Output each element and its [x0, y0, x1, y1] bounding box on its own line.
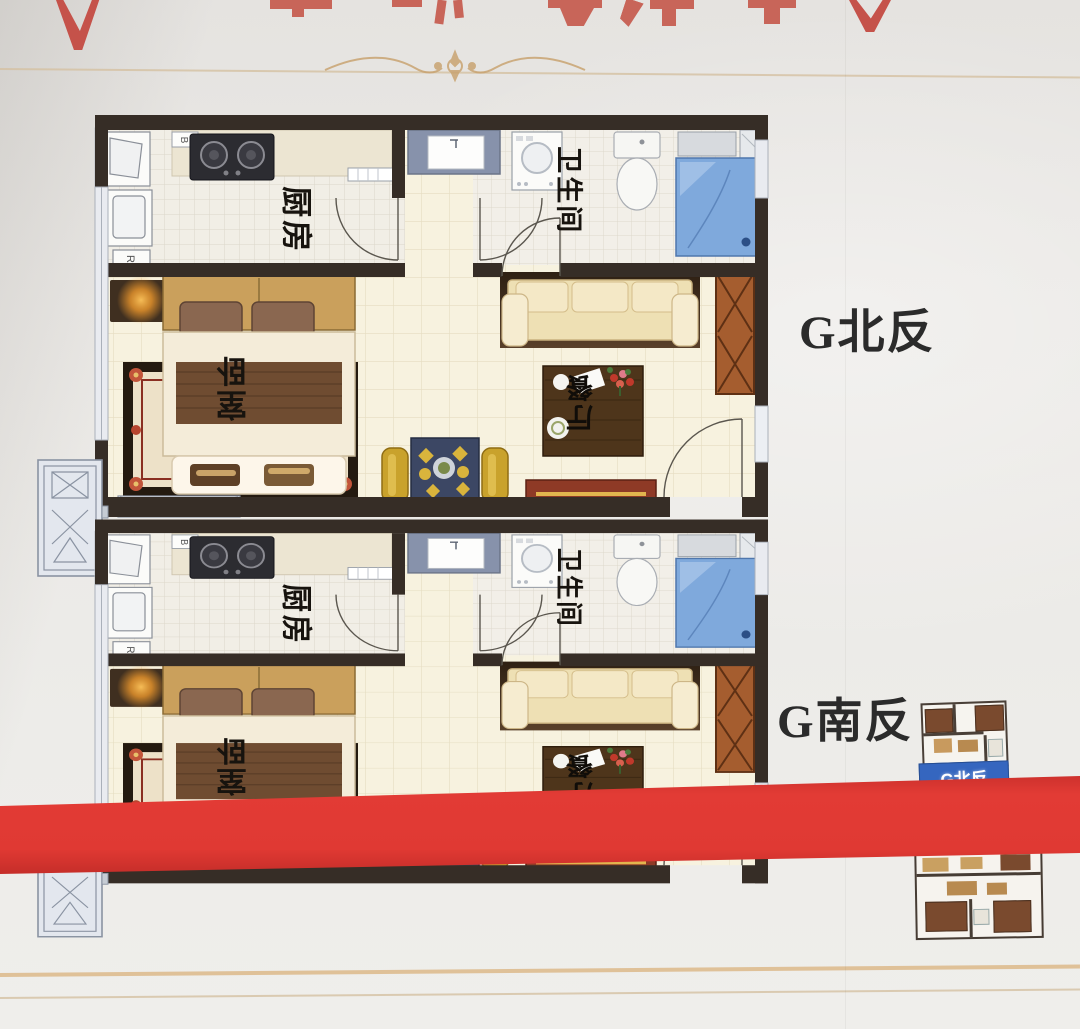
bottom-border-line-thick [0, 965, 1080, 977]
washer-mark: R [124, 646, 136, 654]
washer-mark: R [124, 255, 136, 263]
bathroom-label: 卫生间 [554, 146, 581, 233]
bathroom-label: 卫生间 [554, 548, 581, 626]
dining-label: 餐厅 [566, 372, 593, 429]
stove-icon [190, 537, 274, 579]
paper-crease [845, 0, 846, 1029]
bottom-border-line-thin [0, 989, 1080, 999]
unit-caption-g-south: G南反 [777, 682, 914, 751]
unit-caption-g-north: G北反 [799, 293, 936, 362]
title-ornament-left [56, 0, 102, 50]
dining-table-icon [543, 366, 643, 456]
sofa-icon [500, 662, 700, 731]
bath-counter [678, 130, 766, 158]
kitchen-label: 厨房 [280, 186, 311, 251]
toilet-icon [614, 535, 660, 606]
bedroom-label: 卧室 [216, 736, 247, 795]
stove-icon [190, 134, 274, 180]
boiler-mark: B [178, 137, 189, 144]
bedroom-label: 卧室 [216, 354, 247, 419]
shower-icon [676, 558, 764, 647]
entry-basin [408, 130, 500, 174]
sofa-icon [500, 272, 700, 348]
title-ornament-right [849, 0, 891, 32]
wardrobe-icon [716, 663, 754, 772]
floor-plan-unit: R B [30, 110, 780, 580]
floor-plan-unit-lower: R B [30, 515, 780, 940]
boiler-mark: B [178, 539, 190, 545]
wardrobe-icon [716, 274, 754, 394]
bath-counter [678, 533, 766, 558]
toilet-icon [614, 132, 660, 210]
entry-basin [408, 533, 500, 573]
shower-icon [676, 158, 764, 256]
bed-icon [163, 276, 355, 494]
mini-floorplan-thumbnail-2 [914, 850, 1039, 936]
floorplan-poster-photo: R B [0, 0, 1080, 1029]
kitchen-label: 厨房 [280, 584, 311, 643]
divider-flourish-ornament [320, 44, 590, 88]
